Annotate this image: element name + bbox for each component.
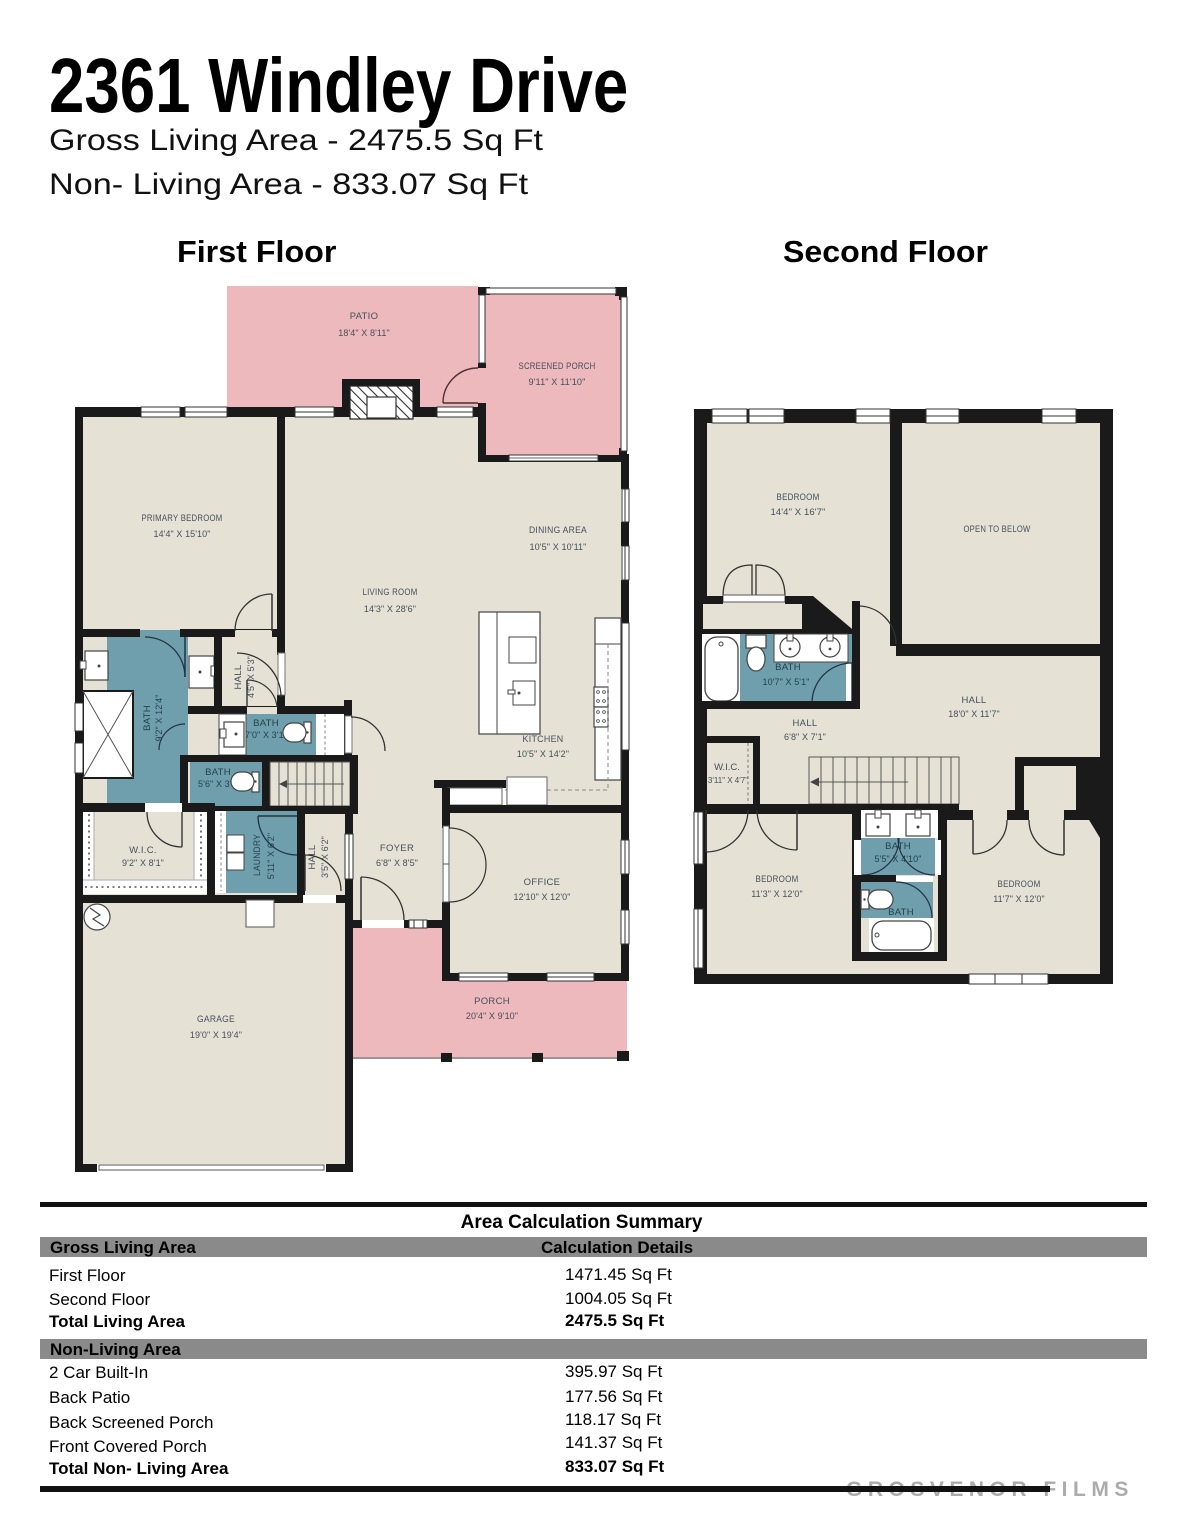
svg-text:BATH: BATH xyxy=(253,718,279,729)
svg-text:18'4" X 8'11": 18'4" X 8'11" xyxy=(338,328,390,338)
svg-text:10'5" X 10'11": 10'5" X 10'11" xyxy=(530,542,587,552)
svg-text:HALL: HALL xyxy=(793,718,818,729)
svg-text:9'2" X 12'4": 9'2" X 12'4" xyxy=(154,694,164,741)
svg-text:12'10" X 12'0": 12'10" X 12'0" xyxy=(514,892,571,902)
svg-text:LIVING ROOM: LIVING ROOM xyxy=(363,587,418,598)
svg-text:14'4" X 15'10": 14'4" X 15'10" xyxy=(154,529,211,539)
svg-text:W.I.C.: W.I.C. xyxy=(714,762,740,773)
svg-text:BATH: BATH xyxy=(205,767,231,778)
svg-text:HALL: HALL xyxy=(962,695,987,706)
svg-text:7'0" X 3'1": 7'0" X 3'1" xyxy=(245,730,287,740)
svg-text:BATH: BATH xyxy=(775,662,801,673)
svg-text:PATIO: PATIO xyxy=(350,311,379,322)
svg-text:BEDROOM: BEDROOM xyxy=(777,492,820,503)
svg-text:DINING AREA: DINING AREA xyxy=(529,525,587,536)
svg-text:PRIMARY BEDROOM: PRIMARY BEDROOM xyxy=(142,513,223,524)
svg-text:14'3" X 28'6": 14'3" X 28'6" xyxy=(364,604,416,614)
svg-text:18'0" X 11'7": 18'0" X 11'7" xyxy=(948,709,1000,719)
svg-text:SCREENED PORCH: SCREENED PORCH xyxy=(519,361,596,372)
svg-text:11'3" X 12'0": 11'3" X 12'0" xyxy=(751,889,803,899)
svg-text:3'11" X 4'7": 3'11" X 4'7" xyxy=(708,776,748,785)
svg-text:3'5" X 6'2": 3'5" X 6'2" xyxy=(320,836,330,878)
svg-text:6'8" X 8'5": 6'8" X 8'5" xyxy=(376,858,418,868)
svg-text:10'5" X 14'2": 10'5" X 14'2" xyxy=(517,749,569,759)
svg-text:10'7" X 5'1": 10'7" X 5'1" xyxy=(762,677,809,687)
svg-text:BEDROOM: BEDROOM xyxy=(756,874,799,885)
svg-text:OPEN TO BELOW: OPEN TO BELOW xyxy=(964,524,1031,535)
svg-text:W.I.C.: W.I.C. xyxy=(129,845,157,856)
svg-text:KITCHEN: KITCHEN xyxy=(523,734,564,745)
svg-text:11'7" X 12'0": 11'7" X 12'0" xyxy=(993,894,1045,904)
svg-text:LAUNDRY: LAUNDRY xyxy=(252,834,263,876)
svg-text:FOYER: FOYER xyxy=(380,843,414,854)
svg-text:BATH: BATH xyxy=(142,705,153,731)
svg-text:PORCH: PORCH xyxy=(474,996,510,1007)
svg-text:5'5" X 4'10": 5'5" X 4'10" xyxy=(874,854,921,864)
svg-text:HALL: HALL xyxy=(233,665,244,690)
svg-text:OFFICE: OFFICE xyxy=(524,877,561,888)
svg-text:BEDROOM: BEDROOM xyxy=(998,879,1041,890)
svg-text:14'4" X 16'7": 14'4" X 16'7" xyxy=(771,507,826,517)
svg-text:5'11" X 6'2": 5'11" X 6'2" xyxy=(266,833,276,879)
svg-text:6'8" X 7'1": 6'8" X 7'1" xyxy=(784,732,826,742)
svg-text:20'4" X 9'10": 20'4" X 9'10" xyxy=(466,1011,518,1021)
svg-text:9'2" X 8'1": 9'2" X 8'1" xyxy=(122,858,164,868)
svg-text:GARAGE: GARAGE xyxy=(197,1014,235,1025)
svg-text:BATH: BATH xyxy=(888,907,914,918)
svg-text:9'11" X 11'10": 9'11" X 11'10" xyxy=(529,377,586,387)
svg-text:19'0" X 19'4": 19'0" X 19'4" xyxy=(190,1030,242,1040)
